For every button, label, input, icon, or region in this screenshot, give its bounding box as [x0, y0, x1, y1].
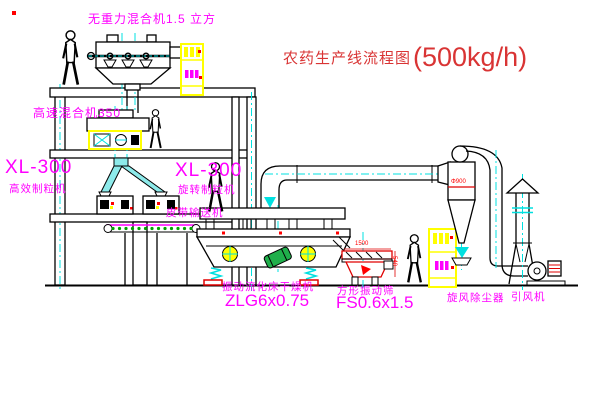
y-chute	[99, 158, 167, 198]
control-cabinet-top	[181, 44, 203, 95]
dimension-screen-height: 540	[391, 256, 397, 266]
dimension-screen-length: 1500	[355, 241, 368, 247]
label-granulator-left-model: XL-300	[5, 158, 72, 179]
label-screen-model: FS0.6x1.5	[336, 294, 414, 313]
corner-mark	[12, 11, 16, 15]
label-fan: 引风机	[511, 292, 546, 304]
belt-conveyor	[104, 225, 200, 233]
label-granulator-left-name: 高效制粒机	[9, 184, 67, 196]
exhaust-duct	[261, 165, 452, 208]
label-dryer-model: ZLG6x0.75	[225, 292, 309, 311]
induced-draft-fan	[527, 261, 565, 285]
person-figure	[63, 31, 78, 85]
cad-flow-diagram: 农药生产线流程图 (500kg/h) 无重力混合机1.5 立方 高速混合机350…	[0, 0, 600, 403]
label-cyclone: 旋风除尘器	[447, 293, 505, 305]
title-text: 农药生产线流程图	[283, 47, 411, 68]
title-capacity: (500kg/h)	[413, 42, 527, 73]
person-figure	[150, 110, 161, 148]
granulator-left	[97, 196, 133, 214]
label-granulator-right-model: XL-300	[175, 161, 242, 182]
person-figure	[408, 235, 421, 283]
label-high-speed-mixer: 高速混合机350	[33, 107, 121, 120]
label-granulator-right-name: 旋转制粒机	[178, 185, 236, 197]
label-gravity-free-mixer: 无重力混合机1.5 立方	[88, 13, 216, 26]
diagram-title: 农药生产线流程图 (500kg/h)	[283, 42, 527, 73]
dimension-cyclone: Φ900	[451, 179, 466, 185]
label-belt-conveyor: 皮带输送机	[166, 208, 224, 220]
gravity-free-mixer	[88, 33, 183, 113]
